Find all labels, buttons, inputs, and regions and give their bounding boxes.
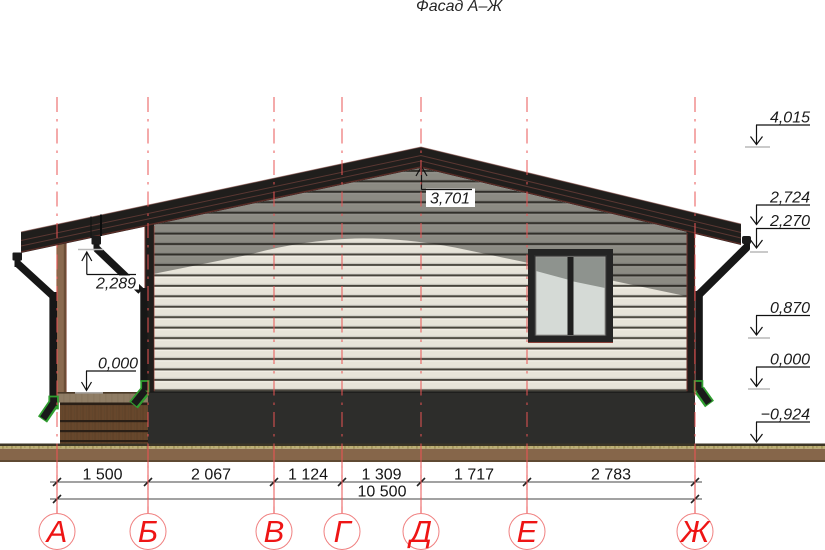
svg-text:Д: Д <box>407 514 432 549</box>
svg-text:2,270: 2,270 <box>769 213 810 230</box>
svg-text:1 309: 1 309 <box>361 467 401 484</box>
svg-text:2,724: 2,724 <box>769 190 810 207</box>
svg-text:Ж: Ж <box>679 514 711 549</box>
svg-text:0,000: 0,000 <box>98 356 138 373</box>
svg-text:2,289: 2,289 <box>95 276 136 293</box>
svg-text:Фасад А–Ж: Фасад А–Ж <box>416 0 503 15</box>
svg-text:В: В <box>264 514 285 549</box>
svg-text:0,000: 0,000 <box>770 352 810 369</box>
svg-text:3,701: 3,701 <box>430 191 470 208</box>
svg-text:0,870: 0,870 <box>770 300 810 317</box>
svg-text:10 500: 10 500 <box>358 484 407 501</box>
svg-text:4,015: 4,015 <box>770 110 810 127</box>
svg-text:−0,924: −0,924 <box>761 407 810 424</box>
svg-text:1 717: 1 717 <box>454 467 494 484</box>
svg-text:Б: Б <box>138 514 158 549</box>
svg-text:Е: Е <box>517 514 538 549</box>
svg-text:Г: Г <box>334 514 353 549</box>
svg-text:2 067: 2 067 <box>191 467 231 484</box>
svg-text:2 783: 2 783 <box>591 467 631 484</box>
svg-text:1 124: 1 124 <box>288 467 328 484</box>
svg-text:А: А <box>45 514 68 549</box>
svg-text:1 500: 1 500 <box>82 467 122 484</box>
